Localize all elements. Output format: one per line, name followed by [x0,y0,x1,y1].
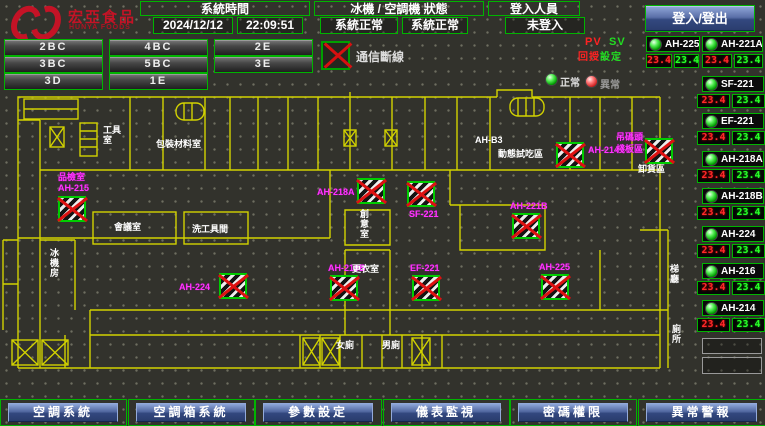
status-led-icon [705,190,718,203]
map-room-label: AH-B3 [475,135,503,145]
sv-value-AH-218B: 23.4 [732,206,765,220]
map-room-label: 會議室 [114,222,141,232]
map-room-label: 廁所 [672,324,686,344]
sv-value-AH-225: 23.4 [674,54,699,68]
abnormal-legend: 異常 [600,76,620,91]
map-unit-label: AH-214 [588,145,619,155]
map-unit-label: AH-215 [58,183,89,193]
status-led-icon [705,302,718,315]
comm-offline-label: 通信斷線 [356,48,404,65]
floor-button-3e[interactable]: 3E [214,56,313,73]
map-room-label: 更衣室 [352,264,379,274]
floor-button-2e[interactable]: 2E [214,39,313,56]
footer-button-4[interactable]: 儀表監視 [391,403,501,422]
map-unit-label: AH-221B [510,201,548,211]
company-logo-icon [10,4,64,34]
map-room-label: 男廁 [382,340,400,350]
map-ahu-unit-AH-225[interactable] [541,274,569,300]
sv-legend-cn: 設定 [600,48,622,63]
sv-value-AH-218A: 23.4 [732,169,765,183]
ahu-name-label: SF-221 [721,79,754,90]
map-unit-label: EF-221 [410,263,440,273]
status-led-icon [705,38,718,51]
floor-button-3bc[interactable]: 3BC [4,56,103,73]
ahu-status-AH-218A[interactable]: AH-218A [702,151,764,167]
status-led-icon [649,38,662,51]
status-led-icon [705,78,718,91]
map-room-label: 洗工具間 [192,224,228,234]
ahu-name-label: AH-216 [721,266,755,277]
ahu-name-label: AH-225 [665,39,699,50]
hmi-screen: 宏亞食品 HUNYA FOODS 系統時間 2024/12/12 22:09:5… [0,0,765,426]
footer-button-5[interactable]: 密碼權限 [518,403,628,422]
ahu-status-badge: 系統正常 [402,17,468,34]
company-name-en: HUNYA FOODS [69,24,131,31]
floor-button-3d[interactable]: 3D [4,73,103,90]
empty-slot [702,357,762,374]
floor-button-1e[interactable]: 1E [109,73,208,90]
pv-value-AH-225: 23.4 [646,54,672,68]
sv-value-AH-224: 23.4 [732,244,765,258]
floor-button-2bc[interactable]: 2BC [4,39,103,56]
login-user-title: 登入人員 [488,1,580,16]
normal-led-icon [545,73,558,86]
sv-value-EF-221: 23.4 [732,131,765,145]
sv-value-SF-221: 23.4 [732,94,765,108]
ahu-name-label: AH-221A [721,39,763,50]
map-unit-label: 品檢室 [58,172,85,182]
pv-value-AH-218B: 23.4 [697,206,730,220]
map-room-label: 冰機房 [50,248,64,278]
floor-button-5bc[interactable]: 5BC [109,56,208,73]
ahu-status-AH-225[interactable]: AH-225 [646,36,700,52]
status-led-icon [705,115,718,128]
map-room-label: 創意室 [360,209,374,239]
pv-legend-cn: 回授 [578,48,600,63]
login-state-badge: 未登入 [505,17,585,34]
floor-button-4bc[interactable]: 4BC [109,39,208,56]
map-room-label: 工具室 [103,125,129,145]
map-area-tag: 吊碼頭 [616,132,643,142]
status-led-icon [705,228,718,241]
map-room-label: 女廁 [336,340,354,350]
empty-slot [702,338,762,354]
pv-value-AH-224: 23.4 [697,244,730,258]
ahu-name-label: AH-214 [721,303,755,314]
map-room-label: 卸貨區 [638,164,665,174]
map-ahu-unit-AH-215[interactable] [58,196,86,222]
comm-offline-icon [321,41,350,70]
map-area-tag: 棧板區 [616,144,643,154]
system-time-title: 系統時間 [140,1,310,16]
ahu-status-AH-218B[interactable]: AH-218B [702,188,764,204]
map-room-label: 梯廳 [670,264,684,284]
map-ahu-unit-AH-214[interactable] [556,142,584,168]
map-room-label: 動態試吃區 [498,149,543,159]
footer-button-6[interactable]: 異常警報 [646,403,757,422]
status-led-icon [705,265,718,278]
ahu-name-label: EF-221 [721,116,754,127]
map-unit-label: AH-218A [317,187,355,197]
map-room-label: 包裝材料室 [156,139,201,149]
normal-legend: 正常 [560,74,580,89]
pv-value-AH-216: 23.4 [697,281,730,295]
ahu-name-label: AH-218B [721,191,763,202]
map-ahu-unit-AH-221B[interactable] [512,213,540,239]
pv-value-SF-221: 23.4 [697,94,730,108]
sv-value-AH-214: 23.4 [732,318,765,332]
ahu-status-EF-221[interactable]: EF-221 [702,113,764,129]
map-unit-label: SF-221 [409,209,439,219]
sv-value-AH-216: 23.4 [732,281,765,295]
pv-legend: PV [585,36,602,48]
map-unit-label: AH-224 [179,282,210,292]
ahu-name-label: AH-218A [721,154,763,165]
pv-value-EF-221: 23.4 [697,131,730,145]
map-ahu-unit-SF-221[interactable] [407,181,435,207]
machine-status-title: 冰機 / 空調機 狀態 [314,1,484,16]
ahu-status-AH-221A[interactable]: AH-221A [702,36,763,52]
system-time-value: 22:09:51 [237,17,303,34]
pv-value-AH-218A: 23.4 [697,169,730,183]
abnormal-led-icon [585,75,598,88]
sv-value-AH-221A: 23.4 [734,54,763,68]
footer-button-1[interactable]: 空調系統 [8,403,118,422]
map-ahu-unit-AH-224[interactable] [219,273,247,299]
footer-button-2[interactable]: 空調箱系統 [136,403,246,422]
ahu-status-SF-221[interactable]: SF-221 [702,76,764,92]
pv-value-AH-214: 23.4 [697,318,730,332]
system-date-value: 2024/12/12 [153,17,233,34]
ahu-status-AH-214[interactable]: AH-214 [702,300,764,316]
footer-button-3[interactable]: 參數設定 [263,403,373,422]
login-logout-button[interactable]: 登入/登出 [645,5,755,32]
ahu-status-AH-224[interactable]: AH-224 [702,226,764,242]
map-unit-label: AH-225 [539,262,570,272]
map-ahu-unit-EF-221[interactable] [412,275,440,301]
pv-value-AH-221A: 23.4 [702,54,732,68]
map-ahu-unit-AH-218A[interactable] [357,178,385,204]
chiller-status-badge: 系統正常 [320,17,398,34]
map-ahu-unit-AH-218B[interactable] [330,275,358,301]
ahu-name-label: AH-224 [721,229,755,240]
map-ahu-unit-unlabeled[interactable] [645,138,673,164]
status-led-icon [705,153,718,166]
sv-legend: SV [609,36,626,48]
ahu-status-AH-216[interactable]: AH-216 [702,263,764,279]
